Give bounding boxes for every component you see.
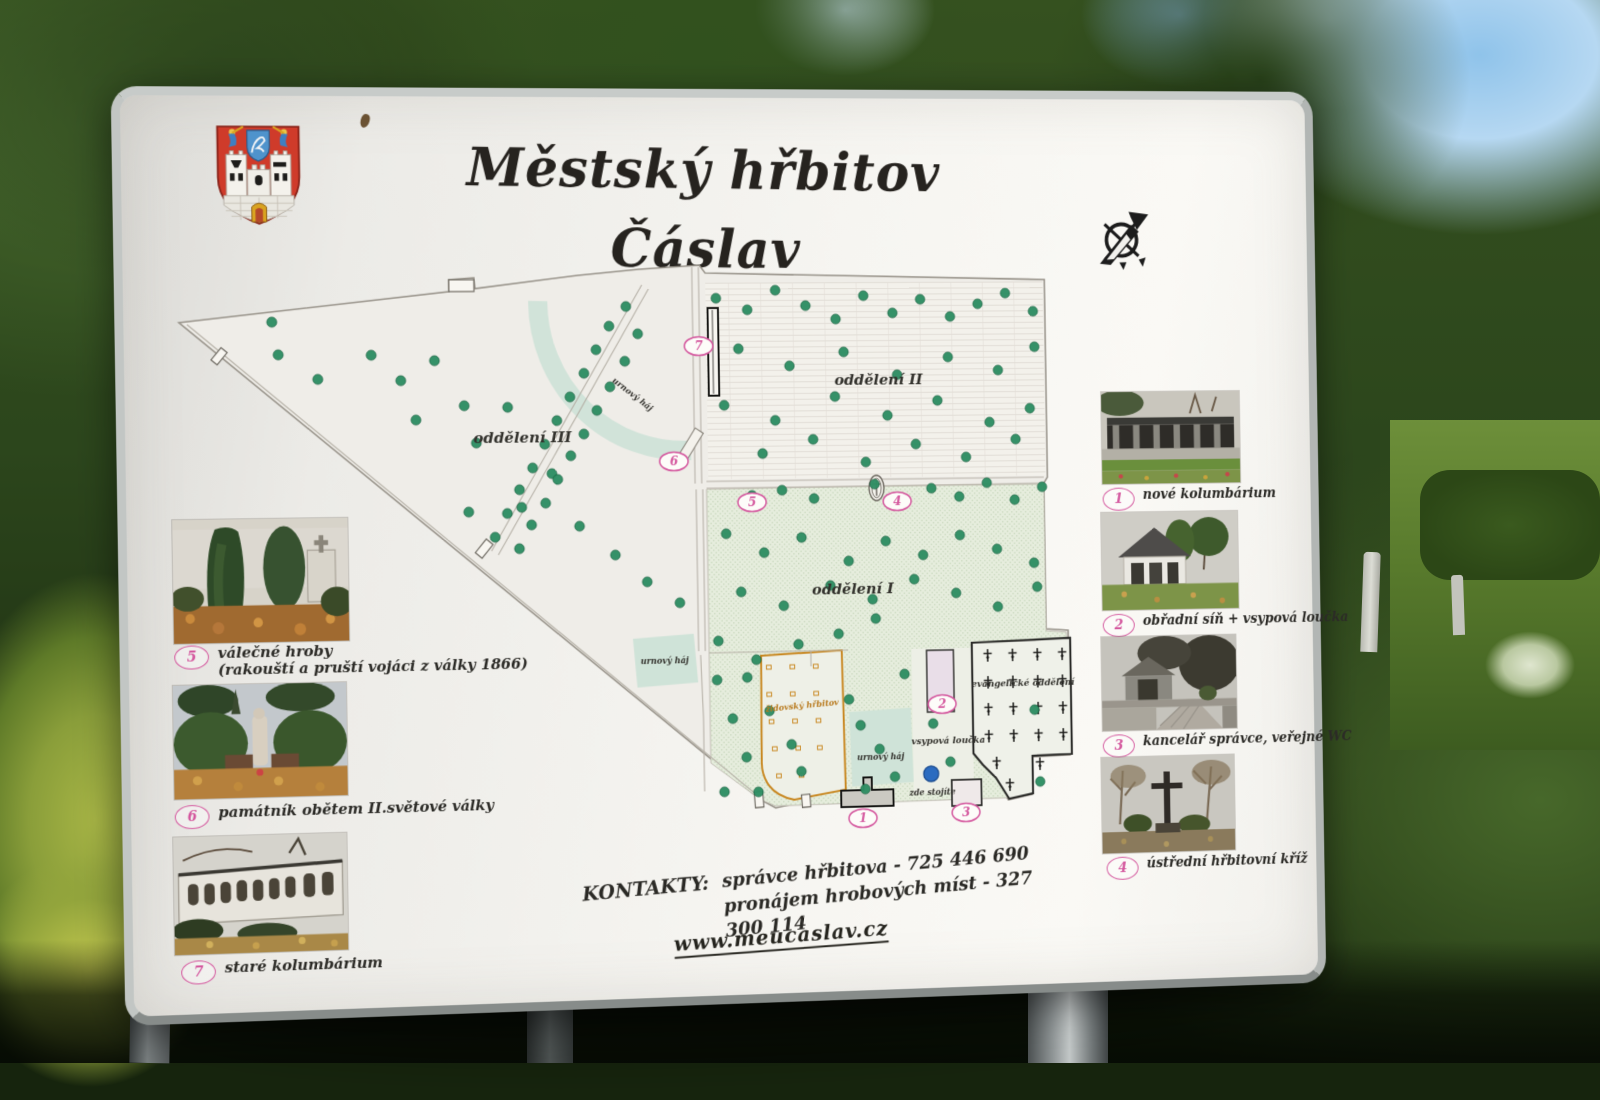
legend-number-6: 6 — [175, 805, 210, 830]
photo-ceremonial-hall — [1101, 511, 1239, 611]
svg-text:5: 5 — [748, 495, 756, 510]
svg-text:1: 1 — [859, 811, 867, 826]
photo-war-graves — [172, 518, 349, 644]
legend-item-1: 1 nové kolumbárium — [1102, 486, 1276, 511]
cemetery-sign-board: Městský hřbitov Čáslav — [111, 86, 1327, 1026]
legend-caption-3: kancelář správce, veřejné WC — [1143, 729, 1352, 750]
legend-caption-4: ústřední hřbitovní kříž — [1147, 851, 1308, 871]
caslav-coat-of-arms-icon — [211, 115, 305, 234]
legend-caption-1: nové kolumbárium — [1143, 486, 1276, 503]
white-flowers-background — [1470, 620, 1590, 710]
legend-item-3: 3 kancelář správce, veřejné WC — [1103, 729, 1352, 758]
photo-new-columbarium — [1101, 391, 1240, 484]
svg-text:6: 6 — [670, 454, 679, 469]
office-building — [952, 779, 982, 806]
legend-number-4: 4 — [1106, 856, 1138, 880]
photo-ww2-memorial — [173, 682, 348, 799]
tombstone-background — [1360, 552, 1380, 653]
legend-item-7: 7 staré kolumbárium — [181, 954, 383, 985]
legend-number-2: 2 — [1103, 614, 1135, 638]
label-scatter-meadow: vsypová loučka — [911, 735, 985, 747]
legend-caption-2: obřadní síň + vsypová loučka — [1143, 610, 1349, 629]
tombstone-background — [1451, 575, 1465, 635]
hedge-background — [1420, 470, 1600, 580]
legend-caption-7: staré kolumbárium — [225, 954, 383, 976]
photo-central-cross — [1101, 754, 1235, 853]
legend-caption-5: válečné hroby (rakouští a pruští vojáci … — [218, 639, 528, 679]
legend-number-3: 3 — [1103, 734, 1135, 758]
svg-text:7: 7 — [694, 339, 703, 354]
you-are-here-dot — [924, 766, 939, 782]
svg-text:4: 4 — [893, 494, 901, 509]
label-urn-grove-low: urnový háj — [857, 751, 905, 763]
svg-text:3: 3 — [962, 805, 971, 820]
legend-number-5: 5 — [174, 645, 209, 670]
photo-caretaker-office — [1101, 635, 1237, 731]
contacts-label: KONTAKTY: — [582, 871, 710, 906]
crest-blue-shield — [247, 130, 270, 161]
photo-background: Městský hřbitov Čáslav — [0, 0, 1600, 1063]
jewish-cemetery-outline — [760, 650, 846, 800]
photo-old-columbarium — [173, 833, 348, 956]
label-you-are-here: zde stojíte — [908, 787, 956, 799]
legend-number-7: 7 — [181, 960, 216, 985]
svg-text:2: 2 — [937, 697, 947, 712]
legend-number-1: 1 — [1102, 487, 1134, 510]
legend-item-4: 4 ústřední hřbitovní kříž — [1106, 851, 1307, 880]
label-urn-grove-mid: urnový háj — [641, 655, 690, 667]
label-section-i: oddělení I — [812, 579, 895, 599]
label-section-iii: oddělení III — [473, 427, 572, 447]
legend-item-2: 2 obřadní síň + vsypová loučka — [1103, 610, 1349, 638]
compass-north-icon — [1084, 203, 1163, 276]
label-section-ii: oddělení II — [834, 370, 923, 389]
